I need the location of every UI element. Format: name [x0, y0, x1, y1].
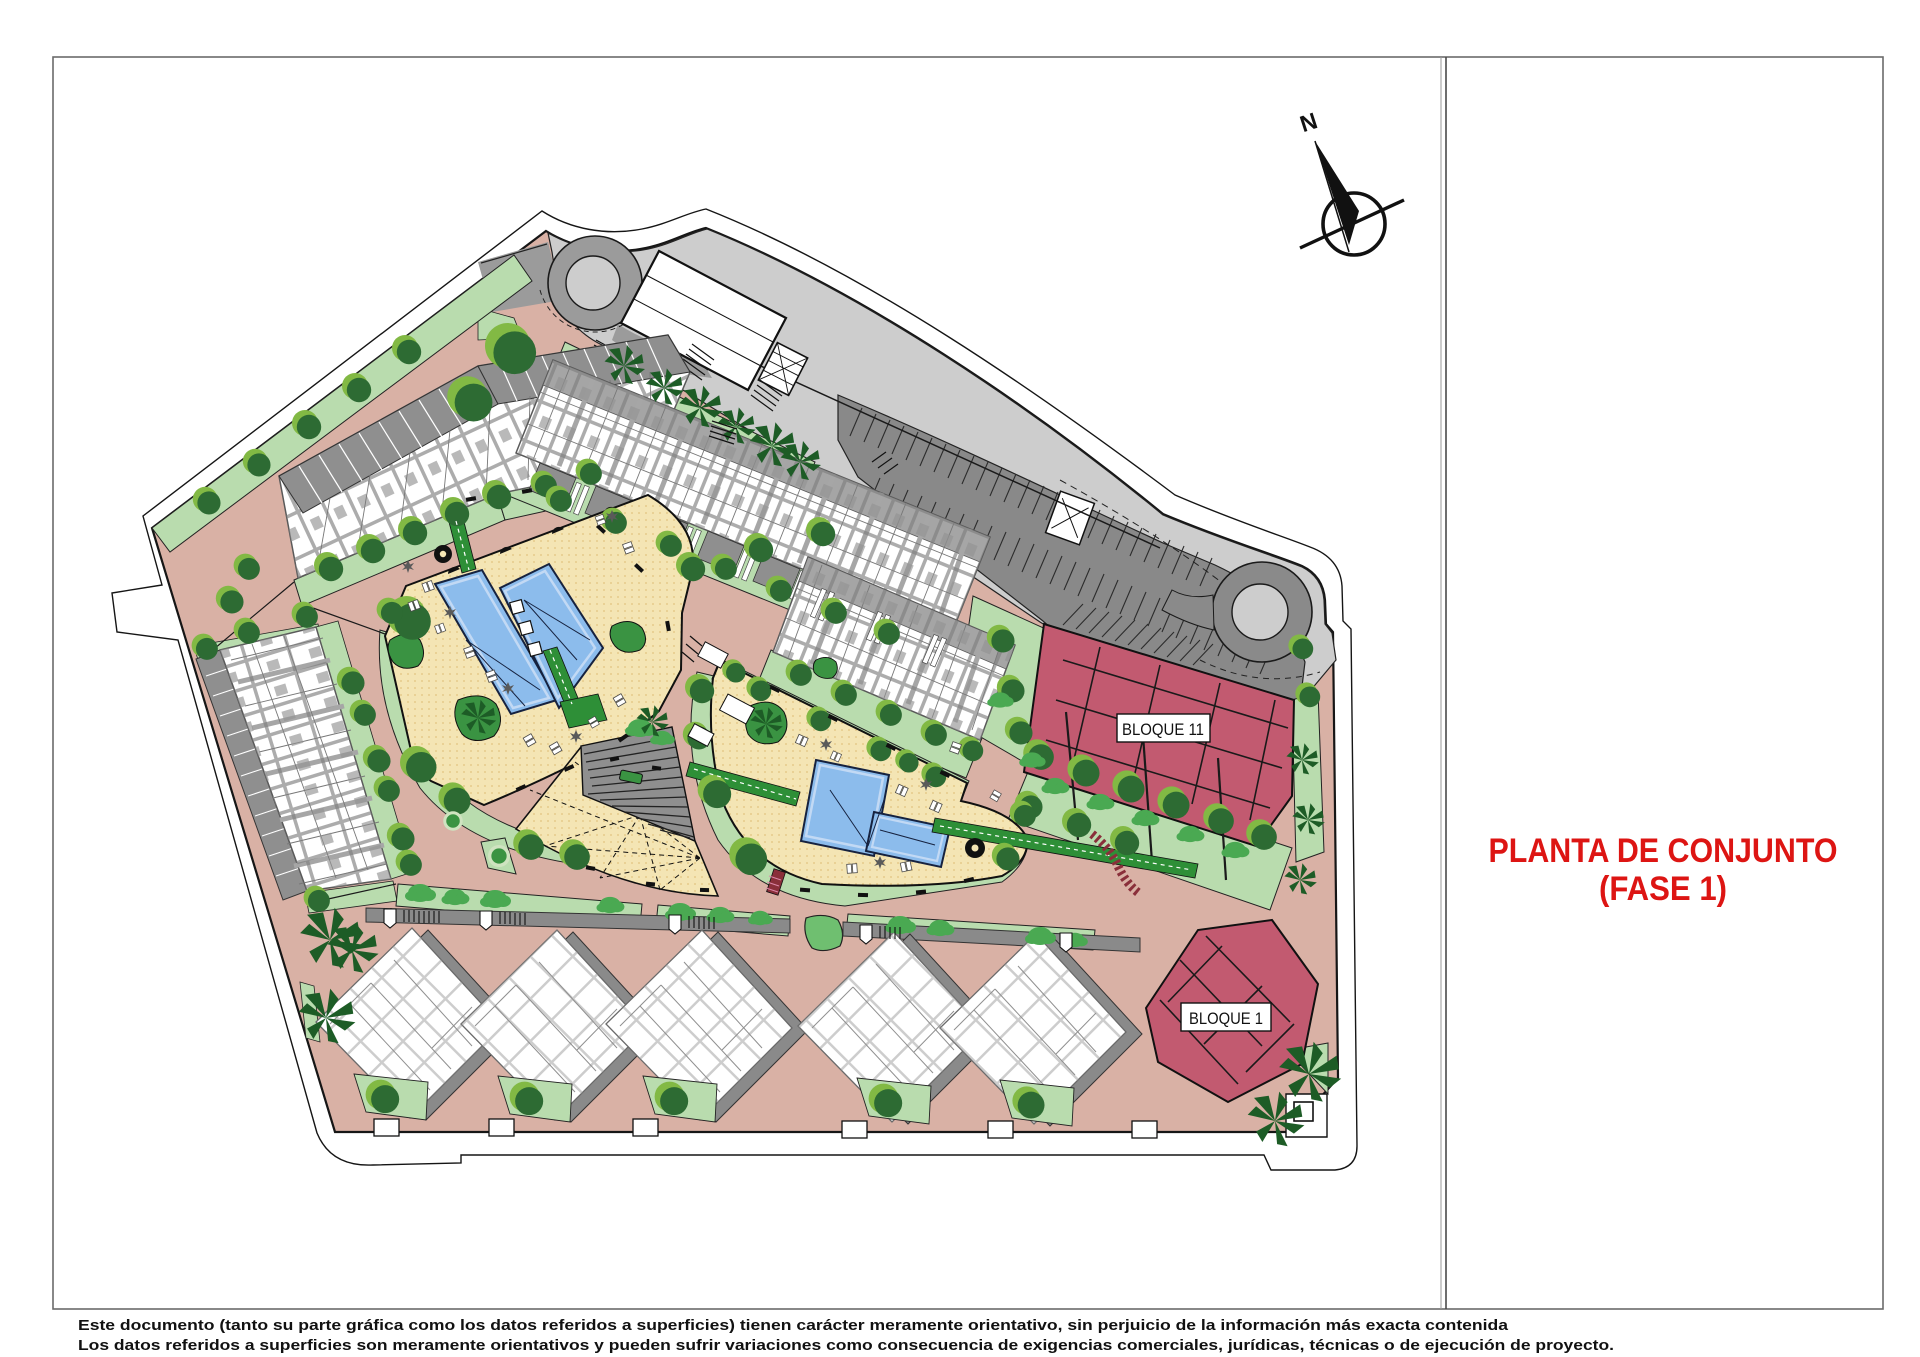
- svg-text:Este documento (tanto su parte: Este documento (tanto su parte gráfica c…: [78, 1317, 1509, 1334]
- svg-text:BLOQUE 11: BLOQUE 11: [1122, 720, 1204, 739]
- svg-text:Los datos referidos a superfic: Los datos referidos a superficies son me…: [78, 1337, 1614, 1354]
- svg-text:(FASE 1): (FASE 1): [1599, 870, 1727, 908]
- svg-text:PLANTA DE CONJUNTO: PLANTA DE CONJUNTO: [1489, 832, 1838, 870]
- svg-text:BLOQUE 1: BLOQUE 1: [1189, 1009, 1263, 1028]
